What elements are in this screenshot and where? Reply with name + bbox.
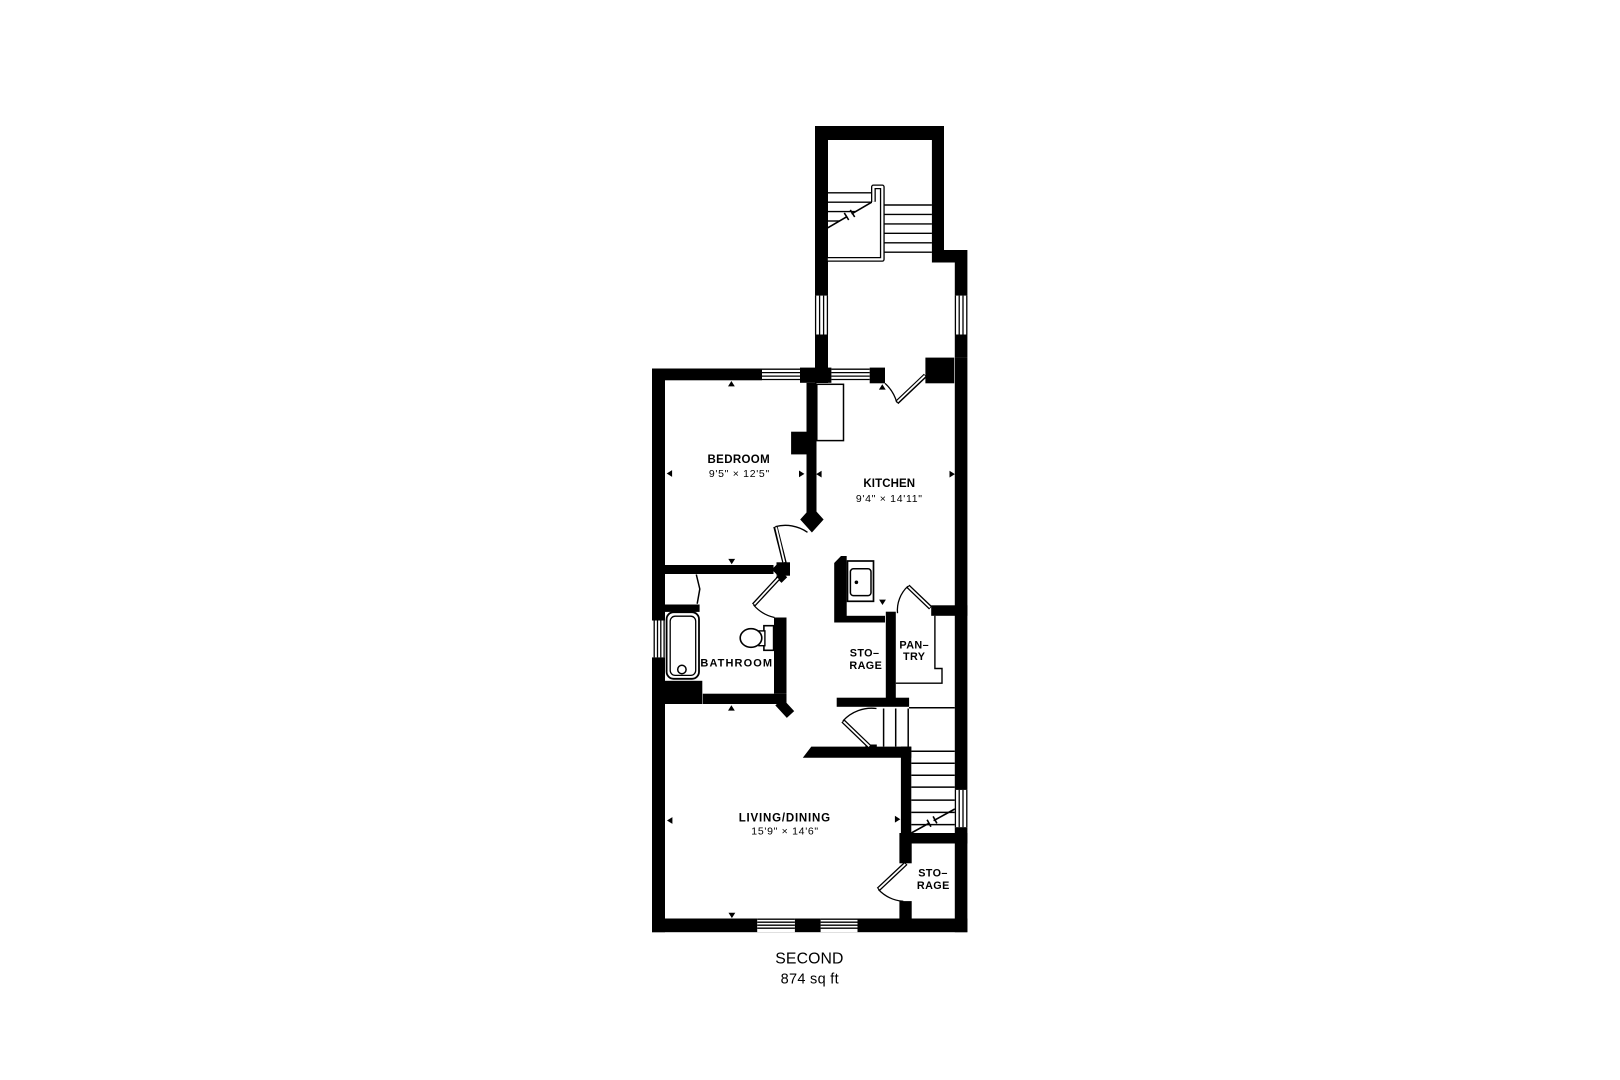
svg-text:STO–: STO– xyxy=(850,648,880,660)
svg-text:BEDROOM: BEDROOM xyxy=(708,454,771,466)
svg-text:15'9" × 14'6": 15'9" × 14'6" xyxy=(751,826,819,838)
svg-text:RAGE: RAGE xyxy=(917,880,950,892)
svg-text:9'5" × 12'5": 9'5" × 12'5" xyxy=(709,468,770,480)
svg-text:874 sq ft: 874 sq ft xyxy=(781,972,839,988)
svg-text:9'4" × 14'11": 9'4" × 14'11" xyxy=(856,493,923,505)
svg-text:TRY: TRY xyxy=(903,651,926,663)
svg-text:KITCHEN: KITCHEN xyxy=(863,478,915,490)
svg-text:LIVING/DINING: LIVING/DINING xyxy=(739,813,831,825)
svg-text:PAN–: PAN– xyxy=(899,639,929,651)
svg-text:STO–: STO– xyxy=(918,868,948,880)
svg-text:BATHROOM: BATHROOM xyxy=(700,658,773,670)
svg-text:SECOND: SECOND xyxy=(775,951,843,968)
svg-text:RAGE: RAGE xyxy=(849,660,882,672)
